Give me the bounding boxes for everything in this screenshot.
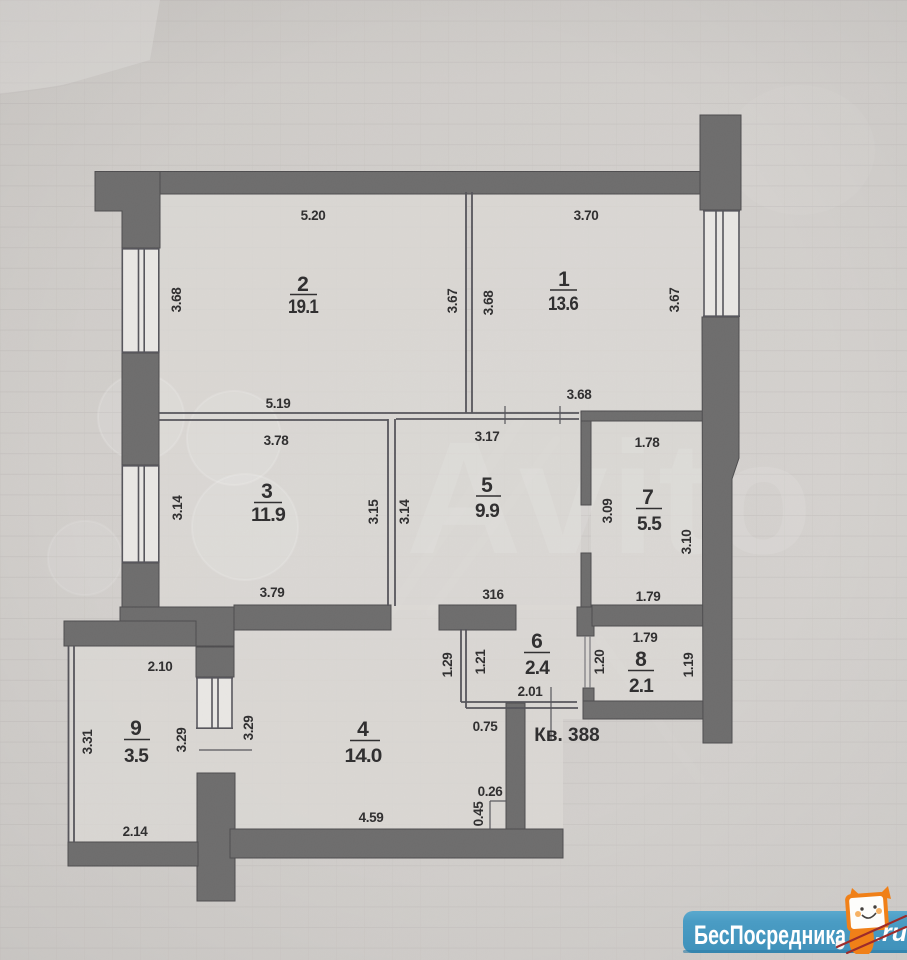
svg-text:БесПосредника: БесПосредника [694,920,847,950]
